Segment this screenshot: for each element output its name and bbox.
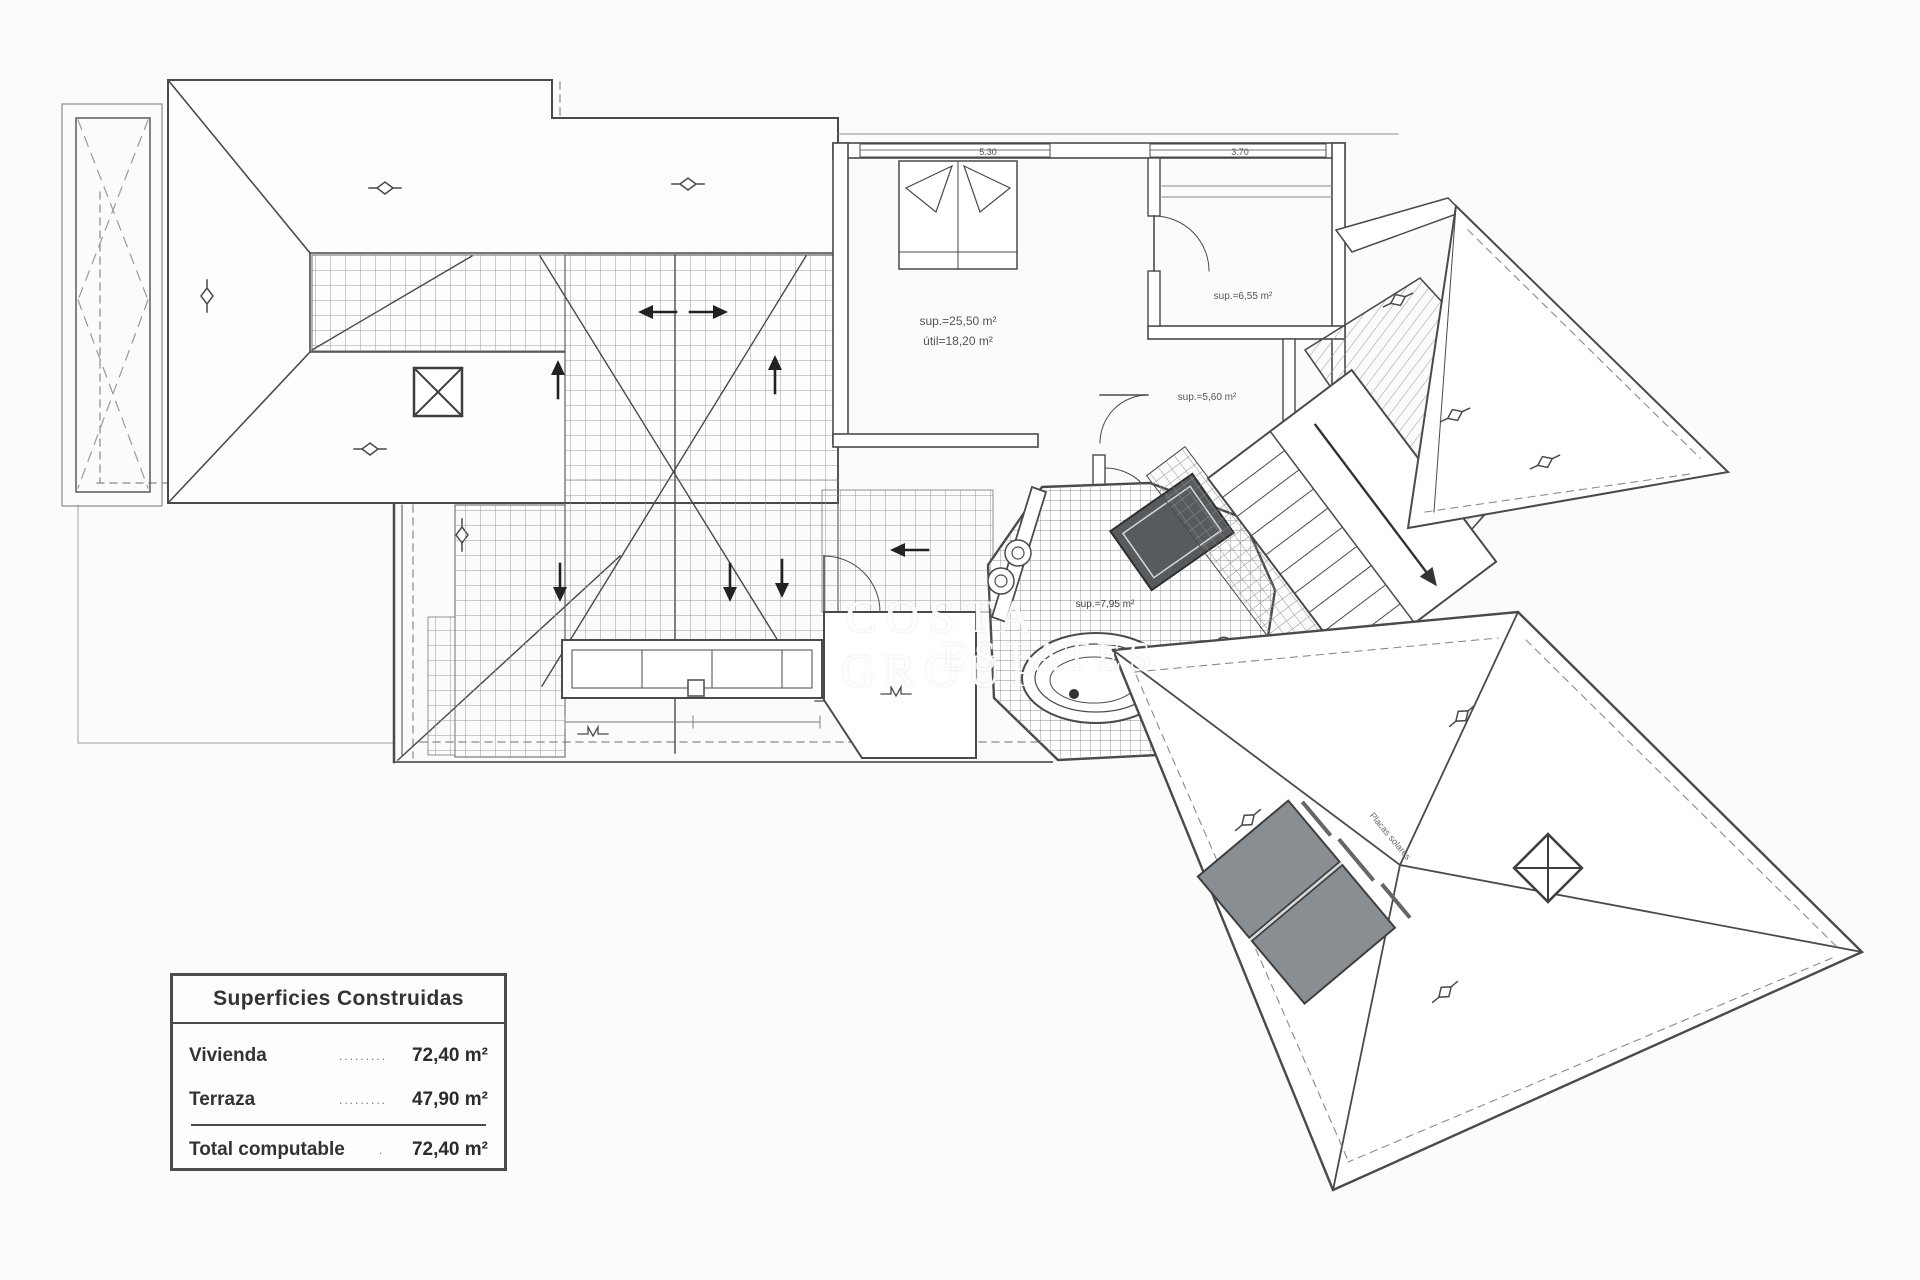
bay-window — [562, 640, 822, 728]
dimension-label: 3.70 — [1231, 147, 1249, 157]
legend-total-value: 72,40 m² — [384, 1139, 488, 1161]
drain-vent-icon — [578, 727, 608, 736]
legend-total-label: Total computable — [189, 1139, 379, 1161]
floor-plan-page: Placas solares sup.=25,50 m² útil=18,20 … — [0, 0, 1920, 1280]
legend-row-vivienda: Vivienda ............... 72,40 m² — [189, 1034, 488, 1078]
dimension-label: 5.30 — [979, 147, 997, 157]
legend-row-value: 72,40 m² — [384, 1045, 488, 1067]
legend-divider — [191, 1124, 486, 1126]
bath-area-label: sup.=7,95 m² — [1076, 599, 1135, 610]
bedroom-area-label: sup.=25,50 m² — [919, 314, 996, 328]
surface-areas-legend: Superficies Construidas Vivienda .......… — [170, 973, 507, 1171]
dressing-area-label: sup.=6,55 m² — [1214, 291, 1273, 302]
chimney-icon — [414, 368, 462, 416]
dressing-room — [1162, 186, 1332, 197]
legend-row-value: 47,90 m² — [384, 1089, 488, 1111]
roof-courtyard-hatch — [312, 255, 565, 351]
bedroom-util-label: útil=18,20 m² — [923, 334, 993, 348]
legend-row-total: Total computable ...... 72,40 m² — [189, 1128, 488, 1172]
legend-row-label: Terraza — [189, 1089, 339, 1111]
pergola — [62, 104, 162, 506]
bed — [899, 161, 1017, 269]
legend-title: Superficies Construidas — [173, 976, 504, 1024]
legend-row-label: Vivienda — [189, 1045, 339, 1067]
legend-row-leader: ............... — [339, 1049, 384, 1063]
legend-row-terraza: Terraza ............... 47,90 m² — [189, 1078, 488, 1122]
hall-area-label: sup.=5,60 m² — [1178, 392, 1237, 403]
legend-row-leader: ............... — [339, 1093, 384, 1107]
